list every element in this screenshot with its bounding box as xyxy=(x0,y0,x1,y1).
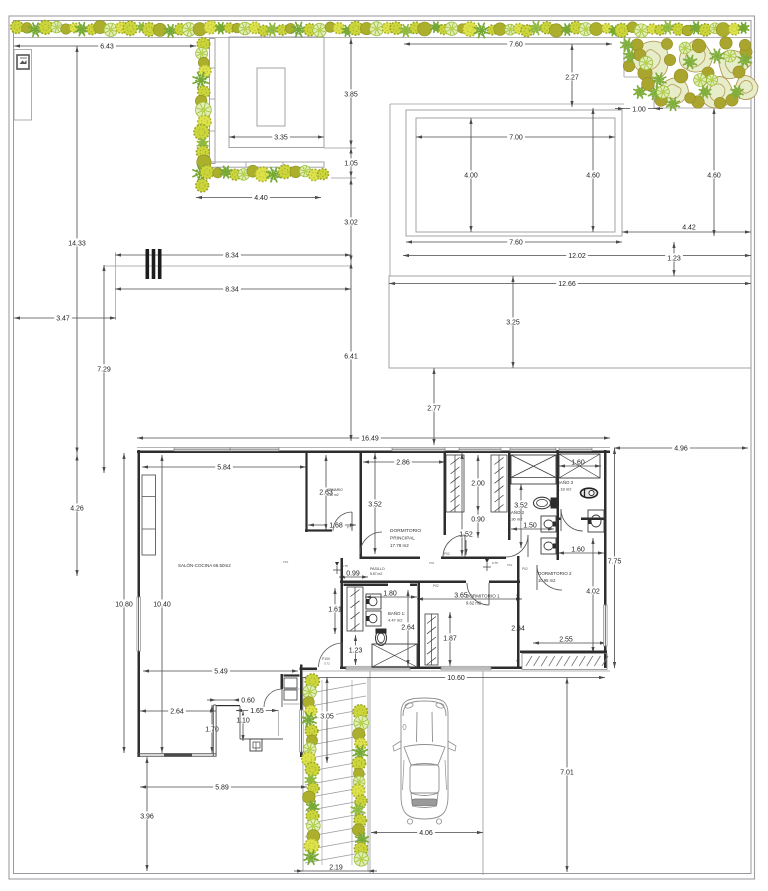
svg-text:7.29: 7.29 xyxy=(97,367,111,374)
svg-text:4.06: 4.06 xyxy=(419,830,433,837)
svg-text:10.80: 10.80 xyxy=(115,602,133,609)
svg-text:14.33: 14.33 xyxy=(68,241,86,248)
svg-text:P82: P82 xyxy=(283,560,289,564)
svg-text:P02: P02 xyxy=(444,552,450,556)
svg-text:P100: P100 xyxy=(322,657,330,661)
svg-text:0.75: 0.75 xyxy=(492,561,498,565)
svg-text:5.89: 5.89 xyxy=(215,785,229,792)
svg-text:3.02: 3.02 xyxy=(344,220,358,227)
svg-text:BAÑO 2: BAÑO 2 xyxy=(508,510,525,515)
svg-text:0.72: 0.72 xyxy=(324,662,330,666)
svg-text:4.96: 4.96 xyxy=(674,446,688,453)
svg-text:2.55: 2.55 xyxy=(559,637,573,644)
svg-text:2.86: 2.86 xyxy=(396,460,410,467)
svg-text:12.02: 12.02 xyxy=(568,253,586,260)
svg-text:2.19: 2.19 xyxy=(329,865,343,872)
svg-text:4.60 m2: 4.60 m2 xyxy=(327,493,339,497)
svg-text:2.00: 2.00 xyxy=(471,481,485,488)
svg-text:7.01: 7.01 xyxy=(560,770,574,777)
svg-text:SALÓN-COCINA 66.50m2: SALÓN-COCINA 66.50m2 xyxy=(178,562,231,568)
svg-text:1.80: 1.80 xyxy=(383,591,397,598)
svg-text:4.60: 4.60 xyxy=(586,173,600,180)
svg-text:8.34: 8.34 xyxy=(225,253,239,260)
svg-text:1.87: 1.87 xyxy=(443,636,457,643)
svg-text:1.60: 1.60 xyxy=(571,547,585,554)
svg-text:1.00: 1.00 xyxy=(632,107,646,114)
svg-text:3.85: 3.85 xyxy=(344,92,358,99)
svg-text:16.49: 16.49 xyxy=(361,436,379,443)
svg-text:4.42: 4.42 xyxy=(682,225,696,232)
svg-text:5.49: 5.49 xyxy=(214,669,228,676)
svg-text:1.23: 1.23 xyxy=(349,648,363,655)
svg-text:4.60: 4.60 xyxy=(707,173,721,180)
svg-text:PRINCIPAL: PRINCIPAL xyxy=(390,536,415,542)
svg-text:1.68: 1.68 xyxy=(329,523,343,530)
svg-text:1.65: 1.65 xyxy=(250,708,264,715)
svg-text:0.75: 0.75 xyxy=(342,564,348,568)
svg-text:1.23: 1.23 xyxy=(667,256,681,263)
svg-text:7.75: 7.75 xyxy=(608,559,622,566)
svg-text:DORMITORIO 1: DORMITORIO 1 xyxy=(466,594,500,599)
svg-text:1.05: 1.05 xyxy=(344,161,358,168)
svg-text:3.96: 3.96 xyxy=(140,814,154,821)
svg-text:4.18 m2: 4.18 m2 xyxy=(557,487,572,492)
svg-text:PASILLO: PASILLO xyxy=(370,567,385,571)
svg-text:P82: P82 xyxy=(507,563,513,567)
svg-text:5.57 m2: 5.57 m2 xyxy=(370,572,382,576)
svg-text:7.60: 7.60 xyxy=(509,240,523,247)
svg-text:DORMITORIO: DORMITORIO xyxy=(390,528,421,534)
svg-text:P02: P02 xyxy=(522,567,528,571)
svg-text:9.62 m2: 9.62 m2 xyxy=(466,601,482,606)
svg-text:10.40: 10.40 xyxy=(153,602,171,609)
svg-text:3.52: 3.52 xyxy=(368,502,382,509)
svg-text:2.64: 2.64 xyxy=(170,709,184,716)
svg-text:0.60: 0.60 xyxy=(241,698,255,705)
svg-text:5.84: 5.84 xyxy=(217,465,231,472)
svg-text:3.05: 3.05 xyxy=(320,714,334,721)
svg-text:BAÑO 1:: BAÑO 1: xyxy=(388,611,405,616)
svg-text:1.70: 1.70 xyxy=(205,727,219,734)
svg-text:2.77: 2.77 xyxy=(427,406,441,413)
svg-text:4.00: 4.00 xyxy=(464,173,478,180)
svg-text:12.66: 12.66 xyxy=(558,281,576,288)
svg-text:3.47: 3.47 xyxy=(56,316,70,323)
svg-text:P02: P02 xyxy=(433,584,439,588)
svg-text:PT2: PT2 xyxy=(347,526,353,530)
svg-text:4.02: 4.02 xyxy=(586,589,600,596)
svg-text:0.99: 0.99 xyxy=(346,571,360,578)
svg-text:10.95 m2: 10.95 m2 xyxy=(538,578,556,583)
svg-text:10.60: 10.60 xyxy=(447,675,465,682)
svg-text:7.60: 7.60 xyxy=(509,42,523,49)
svg-text:3.52: 3.52 xyxy=(514,503,528,510)
svg-text:4.40: 4.40 xyxy=(254,195,268,202)
svg-text:DORMITORIO 2: DORMITORIO 2 xyxy=(538,571,572,576)
svg-text:ARMARIO: ARMARIO xyxy=(327,488,343,492)
svg-text:7.00: 7.00 xyxy=(509,135,523,142)
svg-text:P82: P82 xyxy=(429,561,435,565)
svg-text:5.30 m2: 5.30 m2 xyxy=(508,517,523,522)
svg-text:1.50: 1.50 xyxy=(523,523,537,530)
svg-text:0.90: 0.90 xyxy=(471,517,485,524)
svg-text:4.26: 4.26 xyxy=(70,506,84,513)
svg-text:6.41: 6.41 xyxy=(344,354,358,361)
svg-text:6.43: 6.43 xyxy=(100,44,114,51)
svg-text:4.47 m2: 4.47 m2 xyxy=(388,618,403,623)
svg-text:3.35: 3.35 xyxy=(274,135,288,142)
svg-text:8.34: 8.34 xyxy=(225,287,239,294)
svg-text:BAÑO 3: BAÑO 3 xyxy=(557,480,574,485)
svg-text:1.10: 1.10 xyxy=(236,718,250,725)
svg-text:3.25: 3.25 xyxy=(506,320,520,327)
svg-text:2.27: 2.27 xyxy=(565,75,579,82)
svg-text:2.64: 2.64 xyxy=(401,625,415,632)
svg-text:17.78 m2: 17.78 m2 xyxy=(390,543,409,548)
svg-text:1.61: 1.61 xyxy=(328,607,342,614)
